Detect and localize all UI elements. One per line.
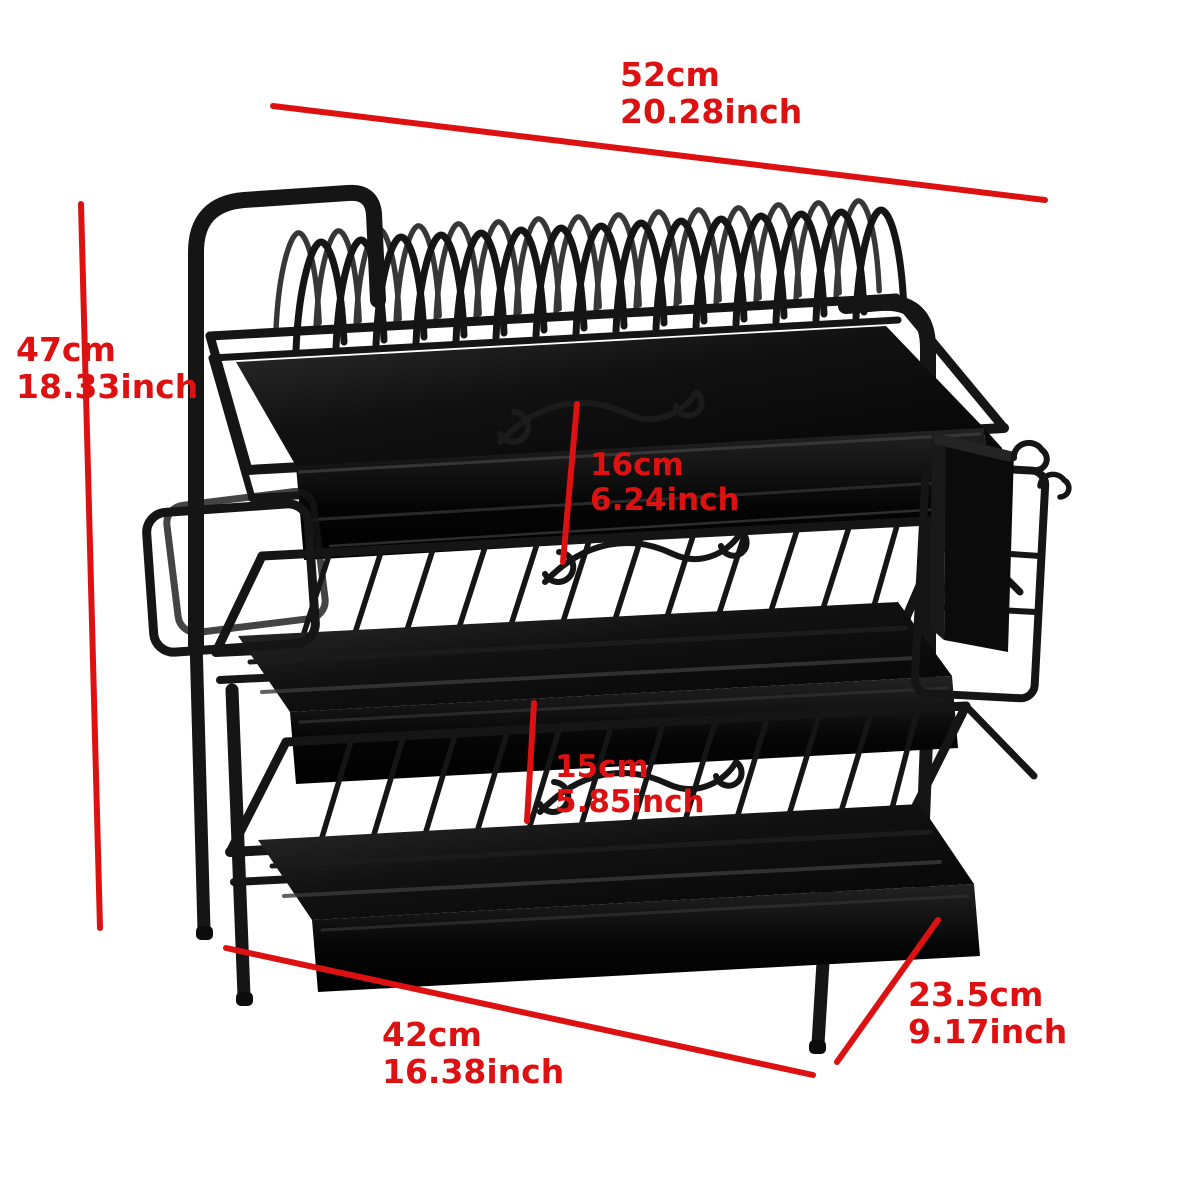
- dim-label-bottom-width: 42cm 16.38inch: [382, 1016, 564, 1090]
- dim-value-inch: 20.28inch: [620, 93, 802, 130]
- rack-frame: [145, 193, 1069, 1054]
- dim-value-inch: 18.33inch: [16, 368, 198, 405]
- dim-value-inch: 9.17inch: [908, 1013, 1067, 1050]
- dim-value-inch: 5.85inch: [555, 785, 705, 820]
- dim-value-cm: 42cm: [382, 1016, 564, 1053]
- dim-label-left-height: 47cm 18.33inch: [16, 331, 198, 405]
- dim-label-depth: 23.5cm 9.17inch: [908, 976, 1067, 1050]
- dim-value-cm: 15cm: [555, 750, 705, 785]
- dim-value-cm: 23.5cm: [908, 976, 1067, 1013]
- dim-value-inch: 6.24inch: [590, 483, 740, 518]
- dim-value-cm: 47cm: [16, 331, 198, 368]
- dim-value-cm: 16cm: [590, 448, 740, 483]
- dim-label-middle-gap: 16cm 6.24inch: [590, 448, 740, 518]
- dim-value-cm: 52cm: [620, 56, 802, 93]
- board-holder: [145, 489, 327, 653]
- dim-value-inch: 16.38inch: [382, 1053, 564, 1090]
- dim-line-left-height: [81, 204, 100, 928]
- bottom-tray: [258, 804, 980, 992]
- product-dimension-diagram: 52cm 20.28inch 47cm 18.33inch 16cm 6.24i…: [0, 0, 1200, 1200]
- dim-label-top-width: 52cm 20.28inch: [620, 56, 802, 130]
- dim-label-lower-gap: 15cm 5.85inch: [555, 750, 705, 820]
